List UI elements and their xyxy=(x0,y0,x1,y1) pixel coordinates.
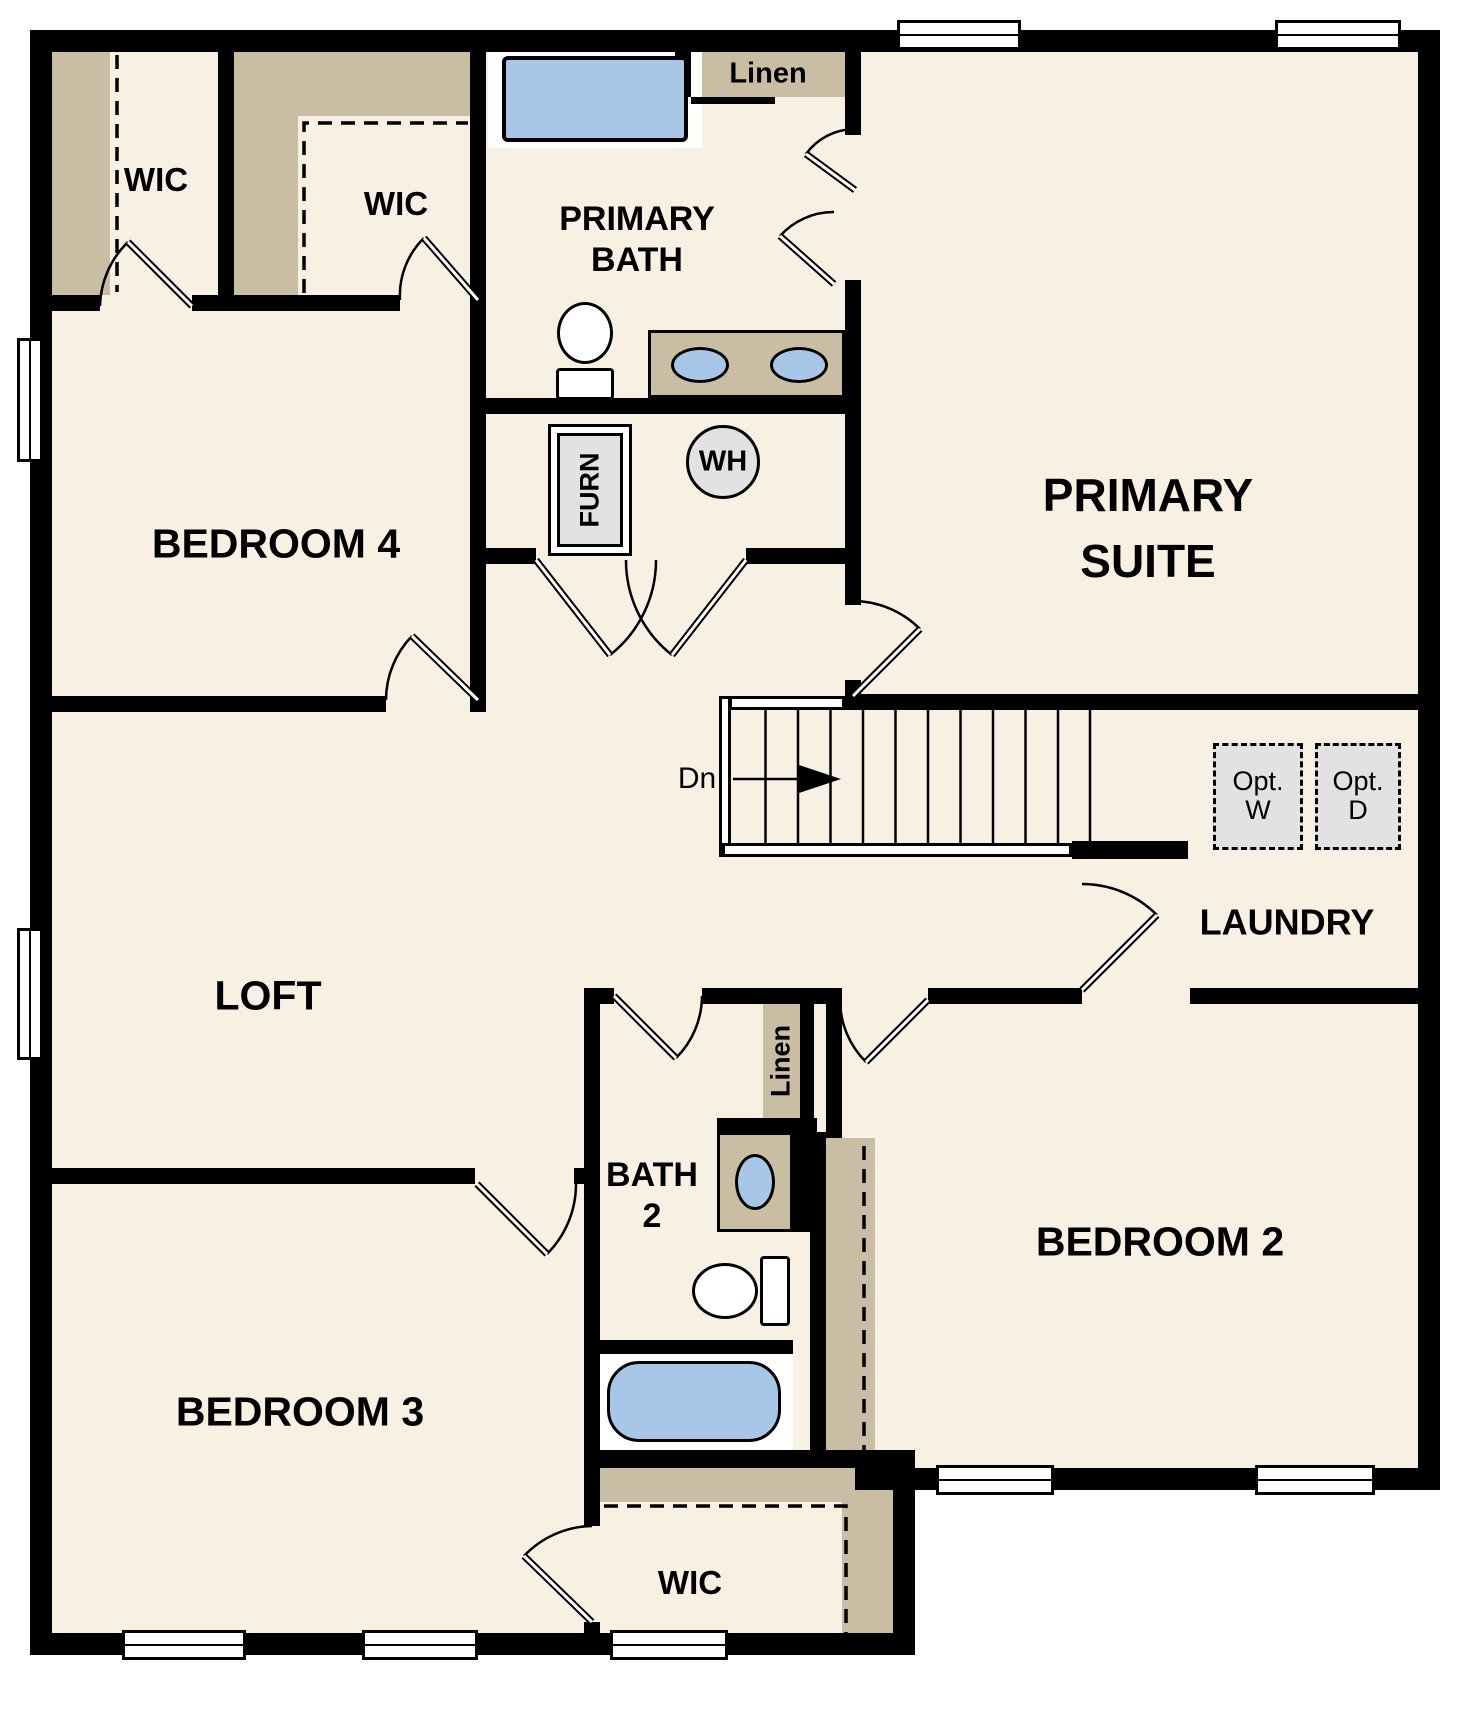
window-left-bedroom4 xyxy=(17,338,43,462)
stair-down-label: Dn xyxy=(678,762,716,797)
bedroom2-door xyxy=(840,1000,928,1062)
bedroom4-door xyxy=(386,636,478,700)
wic1-door xyxy=(100,242,192,306)
window-bedroom2-1 xyxy=(936,1465,1054,1495)
opt-washer-line1: Opt. xyxy=(1232,767,1283,796)
primary-bath-label-line1: PRIMARY xyxy=(559,199,715,240)
primary-bath-door xyxy=(780,212,834,284)
laundry-label: LAUNDRY xyxy=(1200,901,1375,942)
bath2-label-line2: 2 xyxy=(606,1196,698,1237)
furnace-label: FURN xyxy=(575,453,606,528)
primary-suite-label: PRIMARY SUITE xyxy=(1043,462,1253,594)
wic3-door xyxy=(524,1526,592,1622)
mechanical-double-doors xyxy=(536,560,746,655)
window-bedroom2-2 xyxy=(1255,1465,1375,1495)
window-bedroom3-1 xyxy=(122,1630,246,1660)
linen-top-label: Linen xyxy=(729,57,806,90)
primary-suite-door xyxy=(853,601,920,696)
opt-dryer-line2: D xyxy=(1332,796,1383,825)
opt-dryer-label: Opt. D xyxy=(1332,767,1383,825)
wic1-label: WIC xyxy=(124,161,188,199)
wic3-label: WIC xyxy=(658,1564,722,1602)
primary-bath-label-line2: BATH xyxy=(559,240,715,281)
loft-label: LOFT xyxy=(214,972,321,1019)
opt-washer-line2: W xyxy=(1232,796,1283,825)
bedroom2-label: BEDROOM 2 xyxy=(1036,1218,1284,1265)
window-top-1 xyxy=(897,20,1021,50)
bath2-door xyxy=(614,996,702,1058)
opt-dryer-line1: Opt. xyxy=(1332,767,1383,796)
bedroom3-door xyxy=(477,1184,576,1254)
bedroom4-label: BEDROOM 4 xyxy=(152,520,400,567)
window-bedroom3-2 xyxy=(362,1630,478,1660)
floor-plan: WIC WIC PRIMARY BATH Linen PRIMARY SUITE… xyxy=(0,0,1470,1711)
linen-door xyxy=(806,129,855,190)
laundry-door xyxy=(1082,884,1157,990)
bath2-label-line1: BATH xyxy=(606,1155,698,1196)
wic2-door xyxy=(400,238,478,300)
window-wic3 xyxy=(610,1630,728,1660)
window-top-2 xyxy=(1275,20,1401,50)
primary-suite-label-line2: SUITE xyxy=(1043,528,1253,594)
wic3-rod xyxy=(604,1506,846,1633)
water-heater-label: WH xyxy=(699,445,747,478)
linen-bath2-label: Linen xyxy=(766,1025,797,1097)
doors-and-details-layer xyxy=(0,0,1470,1711)
stair-down-arrow xyxy=(733,765,841,793)
opt-washer-label: Opt. W xyxy=(1232,767,1283,825)
primary-bath-label: PRIMARY BATH xyxy=(559,199,715,281)
bedroom3-label: BEDROOM 3 xyxy=(176,1388,424,1435)
bath2-label: BATH 2 xyxy=(606,1155,698,1237)
primary-suite-label-line1: PRIMARY xyxy=(1043,462,1253,528)
window-left-loft xyxy=(17,928,43,1060)
wic2-label: WIC xyxy=(364,185,428,223)
